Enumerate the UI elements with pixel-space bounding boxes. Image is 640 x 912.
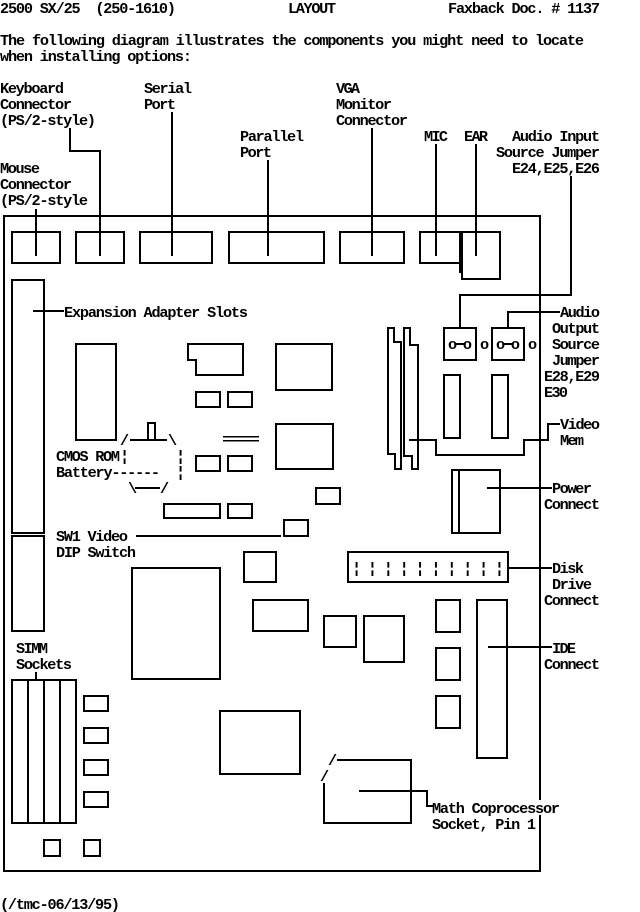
svg-text:Connect: Connect bbox=[544, 592, 600, 610]
svg-text:¦: ¦ bbox=[176, 464, 185, 482]
svg-text:¦ ¦ ¦ ¦ ¦ ¦ ¦ ¦ ¦ ¦: ¦ ¦ ¦ ¦ ¦ ¦ ¦ ¦ ¦ ¦ bbox=[352, 560, 504, 578]
svg-text:Expansion Adapter Slots: Expansion Adapter Slots bbox=[64, 304, 248, 322]
svg-text:Port: Port bbox=[144, 96, 176, 114]
svg-text:2500 SX/25 (250-1610): 2500 SX/25 (250-1610) bbox=[0, 0, 176, 18]
svg-text:EAR: EAR bbox=[464, 128, 489, 146]
svg-text:/: / bbox=[160, 480, 169, 498]
svg-text:Faxback Doc. # 1137: Faxback Doc. # 1137 bbox=[448, 0, 600, 18]
svg-text:Socket, Pin 1: Socket, Pin 1 bbox=[432, 816, 536, 834]
svg-text:Port: Port bbox=[240, 144, 272, 162]
svg-text:Sockets: Sockets bbox=[16, 656, 72, 674]
svg-text:Connect: Connect bbox=[544, 496, 600, 514]
svg-text:/: / bbox=[320, 768, 329, 786]
svg-text:(PS/2-style: (PS/2-style bbox=[0, 192, 88, 210]
svg-text:Battery------: Battery------ bbox=[56, 464, 160, 482]
svg-text:E30: E30 bbox=[544, 384, 568, 402]
svg-text:(PS/2-style): (PS/2-style) bbox=[0, 112, 96, 130]
svg-text:Connect: Connect bbox=[544, 656, 600, 674]
svg-text:DIP Switch: DIP Switch bbox=[56, 544, 136, 562]
svg-text:Connector: Connector bbox=[336, 112, 408, 130]
svg-text:(/tmc-06/13/95): (/tmc-06/13/95) bbox=[0, 896, 120, 912]
svg-text:o: o bbox=[480, 336, 489, 354]
svg-text:LAYOUT: LAYOUT bbox=[288, 0, 336, 18]
svg-text:/: / bbox=[328, 752, 337, 770]
svg-text:E24,E25,E26: E24,E25,E26 bbox=[512, 160, 600, 178]
svg-text:when installing options:: when installing options: bbox=[0, 48, 192, 66]
svg-text:MIC: MIC bbox=[424, 128, 448, 146]
svg-text:Mem: Mem bbox=[560, 432, 584, 450]
svg-text:o: o bbox=[528, 336, 537, 354]
